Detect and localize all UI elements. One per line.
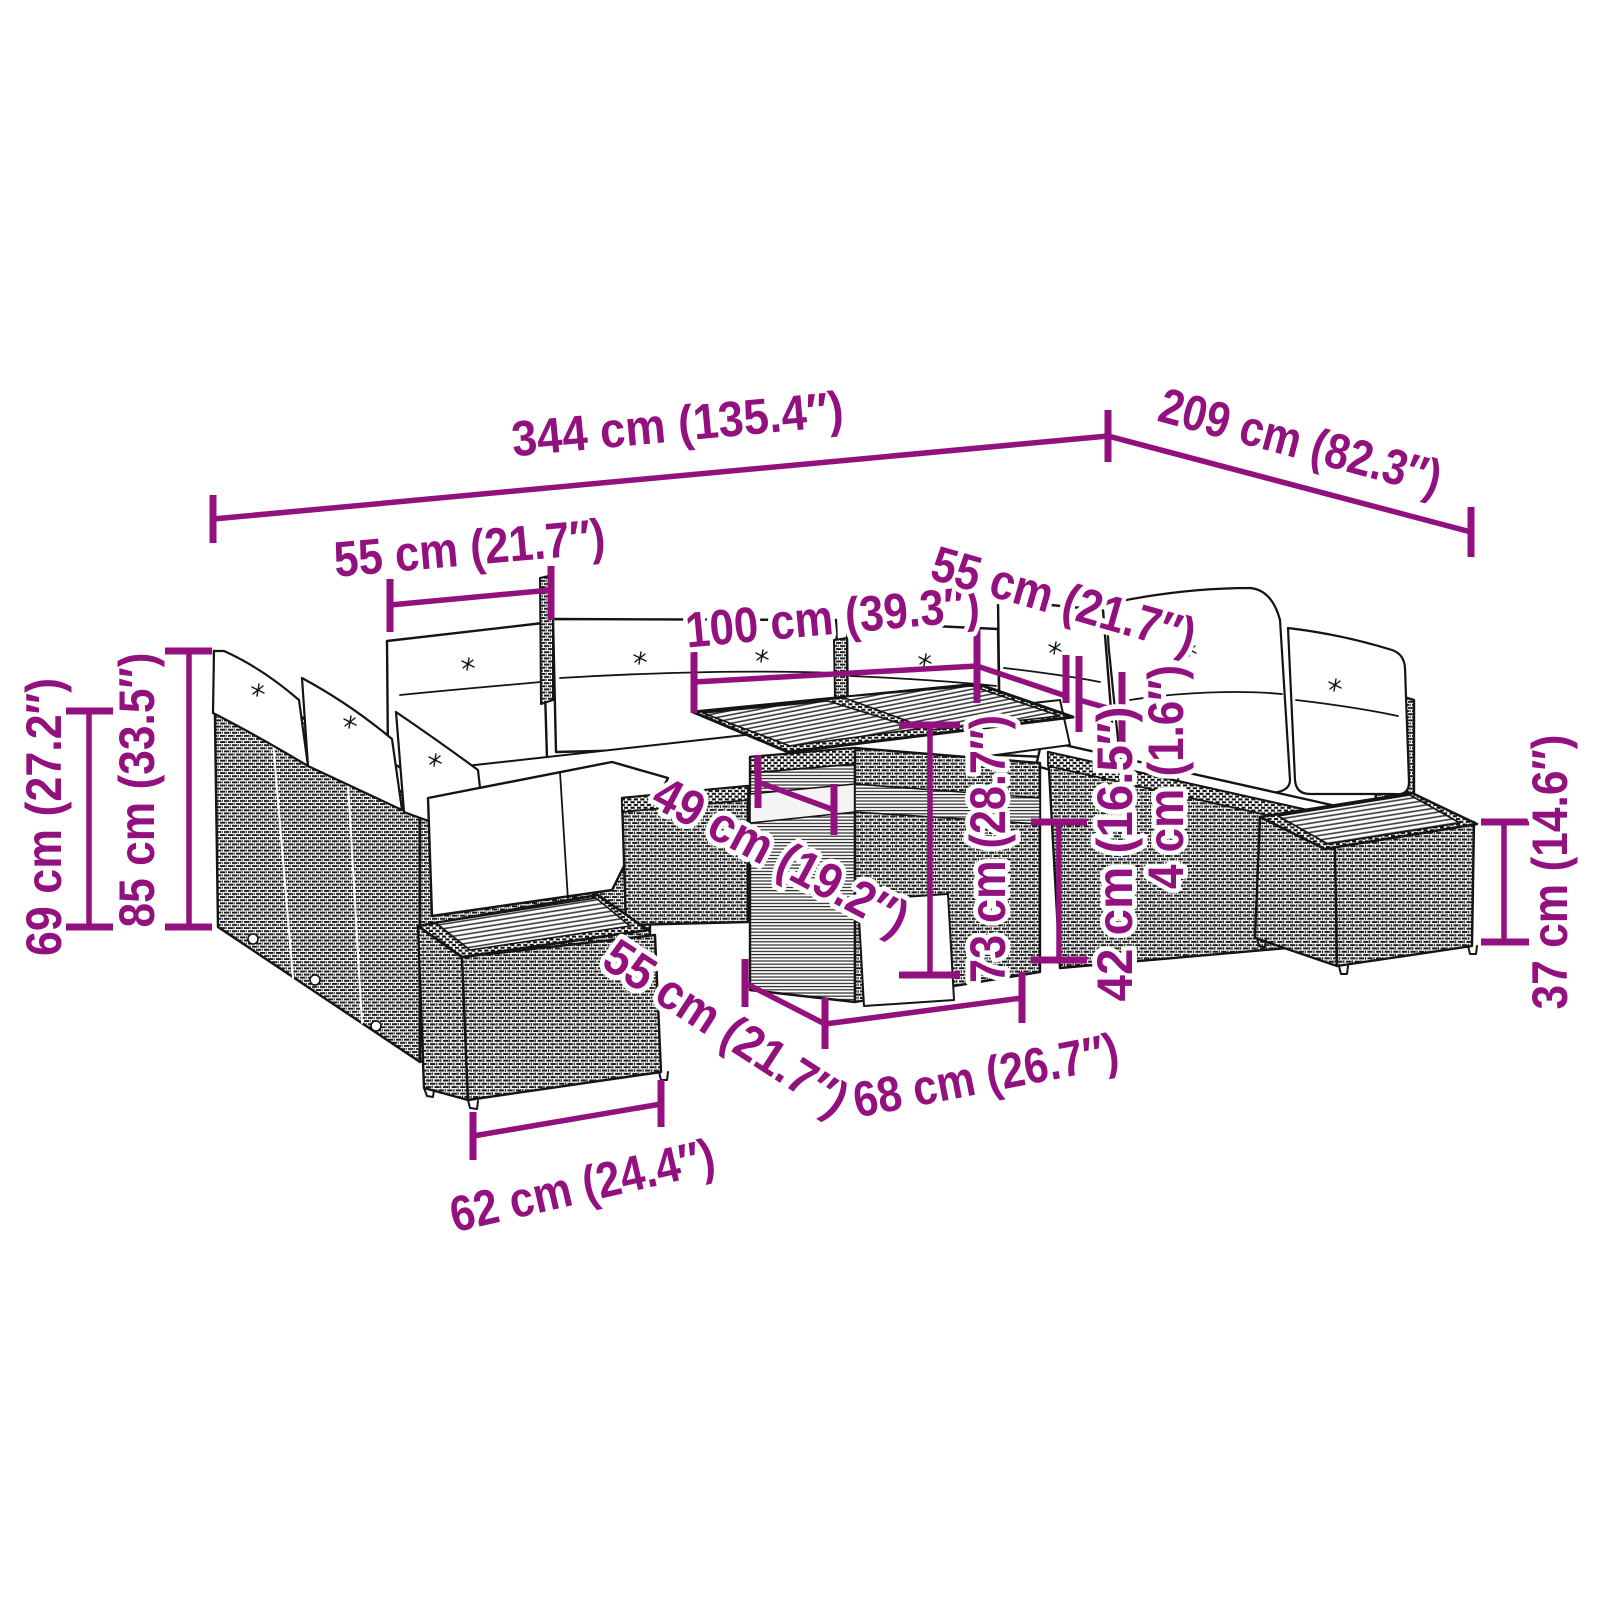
svg-text:4 cm (1.6″): 4 cm (1.6″) (1138, 665, 1194, 889)
svg-text:42 cm (16.5″): 42 cm (16.5″) (1087, 707, 1143, 1002)
svg-text:69 cm (27.2″): 69 cm (27.2″) (16, 678, 72, 956)
svg-text:73 cm (28.7″): 73 cm (28.7″) (960, 715, 1016, 983)
svg-text:85 cm (33.5″): 85 cm (33.5″) (109, 653, 165, 928)
svg-text:37 cm (14.6″): 37 cm (14.6″) (1522, 735, 1578, 1010)
